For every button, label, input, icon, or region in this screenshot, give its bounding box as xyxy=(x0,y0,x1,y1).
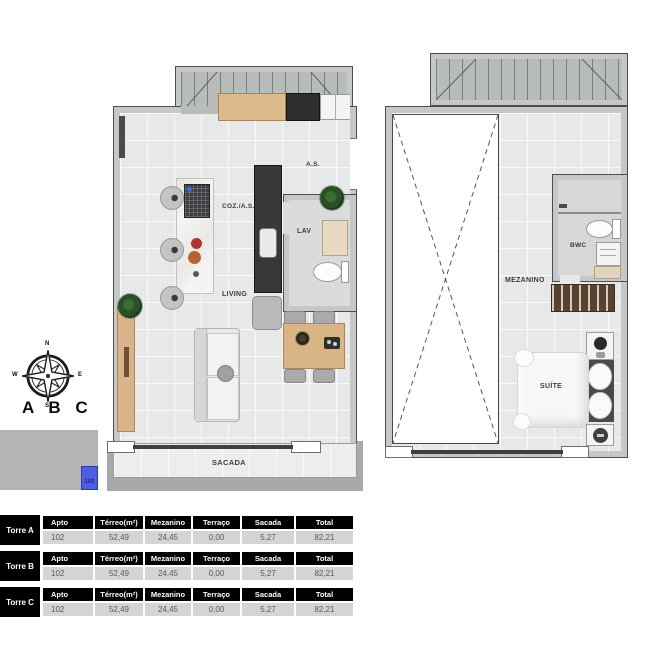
table-value: 102 xyxy=(43,603,93,616)
col-header: Terraço xyxy=(193,588,240,601)
table-value: 52,49 xyxy=(95,567,143,580)
col-header: Terraço xyxy=(193,552,240,565)
table-value: 52,49 xyxy=(95,603,143,616)
table-value: 24,45 xyxy=(145,567,191,580)
floorplan-sheet: A.S. COZ./A.S. LAV LIVING SACADA xyxy=(0,0,665,665)
table-value: 0,00 xyxy=(193,567,240,580)
table-value: 0,00 xyxy=(193,531,240,544)
col-header: Terraço xyxy=(193,516,240,529)
table-value: 5,27 xyxy=(242,531,294,544)
table-value: 24,45 xyxy=(145,531,191,544)
table-value: 82,21 xyxy=(296,603,353,616)
area-table-torre-a: Torre A Apto Térreo(m²) Mezanino Terraço… xyxy=(0,515,356,545)
col-header: Mezanino xyxy=(145,552,191,565)
col-header: Apto xyxy=(43,516,93,529)
tower-label: Torre A xyxy=(0,515,40,545)
col-header: Sacada xyxy=(242,552,294,565)
col-header: Térreo(m²) xyxy=(95,516,143,529)
table-value: 102 xyxy=(43,567,93,580)
table-value: 52,49 xyxy=(95,531,143,544)
col-header: Total xyxy=(296,588,353,601)
col-header: Apto xyxy=(43,552,93,565)
col-header: Sacada xyxy=(242,588,294,601)
area-table-torre-b: Torre B Apto Térreo(m²) Mezanino Terraço… xyxy=(0,551,356,581)
area-table-torre-c: Torre C Apto Térreo(m²) Mezanino Terraço… xyxy=(0,587,356,617)
table-value: 82,21 xyxy=(296,531,353,544)
col-header: Total xyxy=(296,552,353,565)
col-header: Apto xyxy=(43,588,93,601)
col-header: Térreo(m²) xyxy=(95,552,143,565)
col-header: Mezanino xyxy=(145,588,191,601)
table-value: 24,45 xyxy=(145,603,191,616)
col-header: Sacada xyxy=(242,516,294,529)
table-value: 82,21 xyxy=(296,567,353,580)
tower-label: Torre B xyxy=(0,551,40,581)
table-value: 5,27 xyxy=(242,567,294,580)
col-header: Total xyxy=(296,516,353,529)
col-header: Mezanino xyxy=(145,516,191,529)
area-tables: Torre A Apto Térreo(m²) Mezanino Terraço… xyxy=(0,0,665,665)
table-value: 102 xyxy=(43,531,93,544)
col-header: Térreo(m²) xyxy=(95,588,143,601)
table-value: 5,27 xyxy=(242,603,294,616)
table-value: 0,00 xyxy=(193,603,240,616)
tower-label: Torre C xyxy=(0,587,40,617)
